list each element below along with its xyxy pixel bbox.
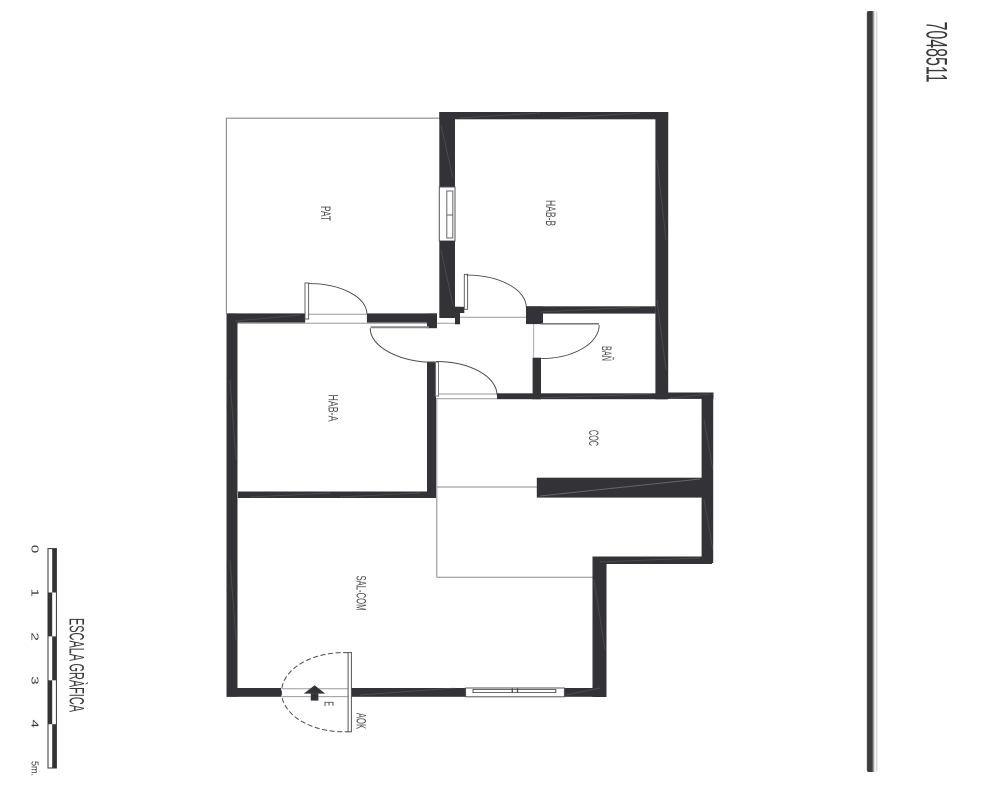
svg-text:E: E xyxy=(321,701,336,706)
svg-text:4: 4 xyxy=(29,719,40,728)
svg-text:PAT: PAT xyxy=(318,206,334,221)
svg-text:2: 2 xyxy=(29,632,40,641)
svg-text:1: 1 xyxy=(29,589,40,598)
svg-text:ESCALA GRÀFICA: ESCALA GRÀFICA xyxy=(65,618,88,712)
svg-text:HAB-B: HAB-B xyxy=(543,200,559,226)
svg-text:HAB-A: HAB-A xyxy=(326,395,342,422)
svg-text:SAL-COM: SAL-COM xyxy=(354,576,370,611)
svg-text:3: 3 xyxy=(29,676,40,685)
svg-text:AOK: AOK xyxy=(354,713,370,729)
svg-text:5m.: 5m. xyxy=(29,761,40,776)
svg-text:COC: COC xyxy=(586,430,602,446)
svg-text:BAÑ: BAÑ xyxy=(599,346,615,361)
svg-text:0: 0 xyxy=(29,545,40,554)
svg-text:7048511: 7048511 xyxy=(920,22,953,83)
